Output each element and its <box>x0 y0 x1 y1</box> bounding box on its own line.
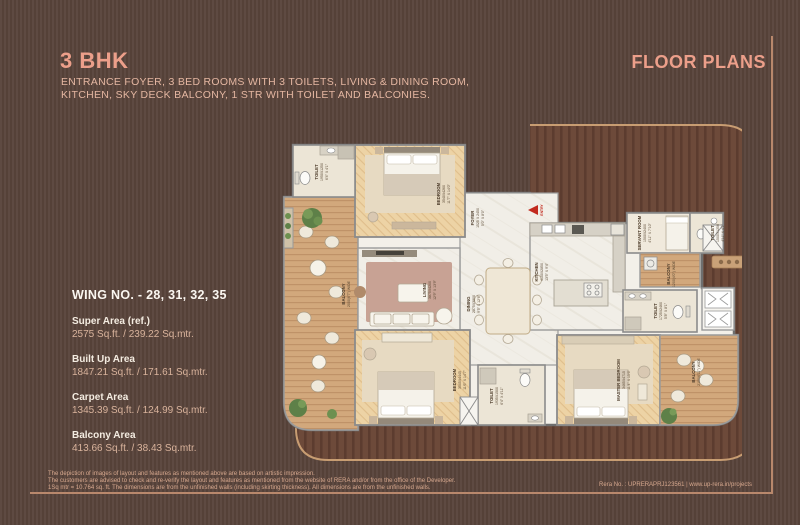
svg-text:MASTER BEDROOM: MASTER BEDROOM <box>616 359 621 401</box>
basin-icon <box>629 294 635 298</box>
svg-text:11'4" X 15'6": 11'4" X 15'6" <box>627 369 631 389</box>
svg-text:LIVING: LIVING <box>422 282 427 297</box>
page-title: 3 BHK <box>60 48 129 74</box>
disclaimer: The depiction of images of layout and fe… <box>48 471 455 493</box>
deck-table-icon <box>712 256 742 268</box>
svg-text:TOILET: TOILET <box>653 303 658 319</box>
fridge-icon <box>611 224 624 235</box>
brochure-page: { "header": { "title": "3 BHK", "descrip… <box>0 0 800 525</box>
carpet-area-label: Carpet Area <box>72 392 272 403</box>
bench-icon <box>392 222 436 229</box>
bed-icon <box>378 372 434 424</box>
label-kitchen: KITCHEN 4100X2850 13'5" X 9'4" <box>534 262 549 281</box>
svg-text:1950X1250: 1950X1250 <box>320 163 324 181</box>
chair-icon <box>638 366 650 378</box>
wc-icon <box>520 374 530 387</box>
builtup-area-value: 1847.21 Sq.ft. / 171.61 Sq.mtr. <box>72 367 272 378</box>
svg-text:3505X4445: 3505X4445 <box>458 371 462 389</box>
tv-icon <box>376 251 404 255</box>
basin-icon <box>532 416 539 420</box>
sink-icon <box>542 225 552 233</box>
entry-label: ENTRY <box>540 204 544 216</box>
left-balcony <box>284 197 358 430</box>
label-bedroom-2: BEDROOM 3505X4445 11'6" X 14'7" <box>452 368 467 391</box>
svg-text:1500X2400: 1500X2400 <box>643 224 647 242</box>
sink-icon <box>555 225 565 233</box>
svg-text:TOILET: TOILET <box>314 164 319 180</box>
chaise-icon <box>638 384 647 400</box>
svg-text:DINING: DINING <box>466 296 471 312</box>
svg-text:4100X2850: 4100X2850 <box>540 263 544 281</box>
super-area-label: Super Area (ref.) <box>72 316 272 327</box>
svg-text:SERVANT ROOM: SERVANT ROOM <box>637 215 642 250</box>
wardrobe-icon <box>562 336 634 344</box>
hob-icon <box>584 283 602 297</box>
svg-text:2000(6'7") WIDE: 2000(6'7") WIDE <box>347 280 351 307</box>
svg-text:6'4" X 4'11": 6'4" X 4'11" <box>500 386 504 404</box>
svg-text:1935X1500: 1935X1500 <box>495 387 499 405</box>
side-table-icon <box>354 286 366 298</box>
svg-text:TOILET: TOILET <box>710 225 715 241</box>
svg-text:6'4" X 4'1": 6'4" X 4'1" <box>325 163 329 180</box>
balcony-area-label: Balcony Area <box>72 430 272 441</box>
svg-text:12'9" X 13'9": 12'9" X 13'9" <box>433 279 437 300</box>
svg-text:2100(6'11") WIDE: 2100(6'11") WIDE <box>697 357 701 385</box>
label-dining: DINING 2875X3800 9'5" X 12'6" <box>466 294 481 313</box>
balcony-area-value: 413.66 Sq.ft. / 38.43 Sq.mtr. <box>72 443 272 454</box>
wing-info-panel: WING NO. - 28, 31, 32, 35 Super Area (re… <box>72 288 272 454</box>
svg-text:9'5" X 12'6": 9'5" X 12'6" <box>477 294 481 313</box>
wc-icon <box>673 306 683 319</box>
svg-text:4'11" X 7'10": 4'11" X 7'10" <box>648 222 652 242</box>
svg-text:TOILET: TOILET <box>489 388 494 404</box>
rera-number: Rera No. : UPRERAPRJ123561 | www.up-rera… <box>599 482 752 488</box>
label-bedroom-1: BEDROOM 3540X4260 11'7" X 14'0" <box>436 182 451 205</box>
basin-icon <box>327 148 335 153</box>
disclaimer-line-1: The depiction of images of layout and fe… <box>48 471 455 478</box>
living-room <box>354 248 460 335</box>
stool-icon <box>368 212 378 222</box>
shower-icon <box>480 368 496 384</box>
daybed-icon <box>382 333 432 342</box>
svg-text:BALCONY: BALCONY <box>341 283 346 304</box>
super-area-value: 2575 Sq.ft. / 239.22 Sq.mtr. <box>72 329 272 340</box>
description-line-1: ENTRANCE FOYER, 3 BED ROOMS WITH 3 TOILE… <box>61 76 469 89</box>
label-foyer: FOYER 1525 X 2450 5'0" X 8'0" <box>470 208 485 228</box>
toilet-1 <box>293 145 355 197</box>
svg-text:3465X4715: 3465X4715 <box>622 371 626 389</box>
svg-text:11'6" X 14'7": 11'6" X 14'7" <box>463 369 467 389</box>
svg-text:2875X3800: 2875X3800 <box>472 295 476 313</box>
builtup-area-group: Built Up Area 1847.21 Sq.ft. / 171.61 Sq… <box>72 354 272 378</box>
wc-icon <box>300 172 310 185</box>
wing-number: WING NO. - 28, 31, 32, 35 <box>72 288 272 302</box>
svg-text:4'11" X 4'1": 4'11" X 4'1" <box>721 223 725 241</box>
louver-panel-icon <box>702 288 734 330</box>
description-line-2: KITCHEN, SKY DECK BALCONY, 1 STR WITH TO… <box>61 89 469 102</box>
builtup-area-label: Built Up Area <box>72 354 272 365</box>
label-toilet-1: TOILET 1950X1250 6'4" X 4'1" <box>314 163 329 181</box>
page-description: ENTRANCE FOYER, 3 BED ROOMS WITH 3 TOILE… <box>61 76 469 101</box>
floor-plan-svg: ENTRY <box>272 122 742 467</box>
label-servant-toilet: TOILET 1500X1250 4'11" X 4'1" <box>710 223 725 242</box>
svg-text:BEDROOM: BEDROOM <box>436 182 441 205</box>
svg-text:3875X4200: 3875X4200 <box>428 281 432 299</box>
basin-icon <box>640 294 646 298</box>
svg-text:5'0" X 8'0": 5'0" X 8'0" <box>481 209 485 226</box>
dining-table-icon <box>486 268 530 334</box>
svg-text:BEDROOM: BEDROOM <box>452 368 457 391</box>
svg-text:1725X2460: 1725X2460 <box>659 302 663 320</box>
label-toilet-2: TOILET 1935X1500 6'4" X 4'11" <box>489 386 504 405</box>
svg-text:KITCHEN: KITCHEN <box>534 262 539 281</box>
svg-text:5'8" X 8'1": 5'8" X 8'1" <box>664 302 668 319</box>
right-rule <box>771 36 773 493</box>
label-master-toilet: TOILET 1725X2460 5'8" X 8'1" <box>653 302 668 320</box>
planter-icon <box>284 208 293 248</box>
svg-text:11'7" X 14'0": 11'7" X 14'0" <box>447 183 451 203</box>
basin-icon <box>711 218 717 224</box>
bed-icon <box>384 147 440 195</box>
super-area-group: Super Area (ref.) 2575 Sq.ft. / 239.22 S… <box>72 316 272 340</box>
svg-text:13'5" X 9'4": 13'5" X 9'4" <box>545 262 549 281</box>
carpet-area-value: 1345.39 Sq.ft. / 124.99 Sq.mtr. <box>72 405 272 416</box>
stove-icon <box>572 225 584 234</box>
master-bedroom <box>557 335 660 425</box>
bottom-rule <box>30 492 773 494</box>
disclaimer-line-2: The customers are advised to check and r… <box>48 478 455 485</box>
svg-text:1200(4'0") WIDE: 1200(4'0") WIDE <box>672 260 676 287</box>
floor-plan: ENTRY <box>272 122 742 467</box>
svg-text:1500X1250: 1500X1250 <box>716 224 720 242</box>
kitchen-counter-icon <box>613 236 625 292</box>
floor-plans-heading: FLOOR PLANS <box>632 52 767 73</box>
washing-machine-icon <box>644 257 657 270</box>
balcony-area-group: Balcony Area 413.66 Sq.ft. / 38.43 Sq.mt… <box>72 430 272 454</box>
carpet-area-group: Carpet Area 1345.39 Sq.ft. / 124.99 Sq.m… <box>72 392 272 416</box>
shower-icon <box>625 317 641 330</box>
svg-text:BALCONY: BALCONY <box>666 263 671 284</box>
chair-icon <box>364 348 376 360</box>
svg-text:3540X4260: 3540X4260 <box>442 185 446 203</box>
shower-icon <box>338 146 354 159</box>
svg-text:1525 X 2450: 1525 X 2450 <box>476 208 480 228</box>
svg-text:BALCONY: BALCONY <box>691 361 696 382</box>
svg-text:FOYER: FOYER <box>470 210 475 226</box>
armchair-icon <box>436 308 452 324</box>
